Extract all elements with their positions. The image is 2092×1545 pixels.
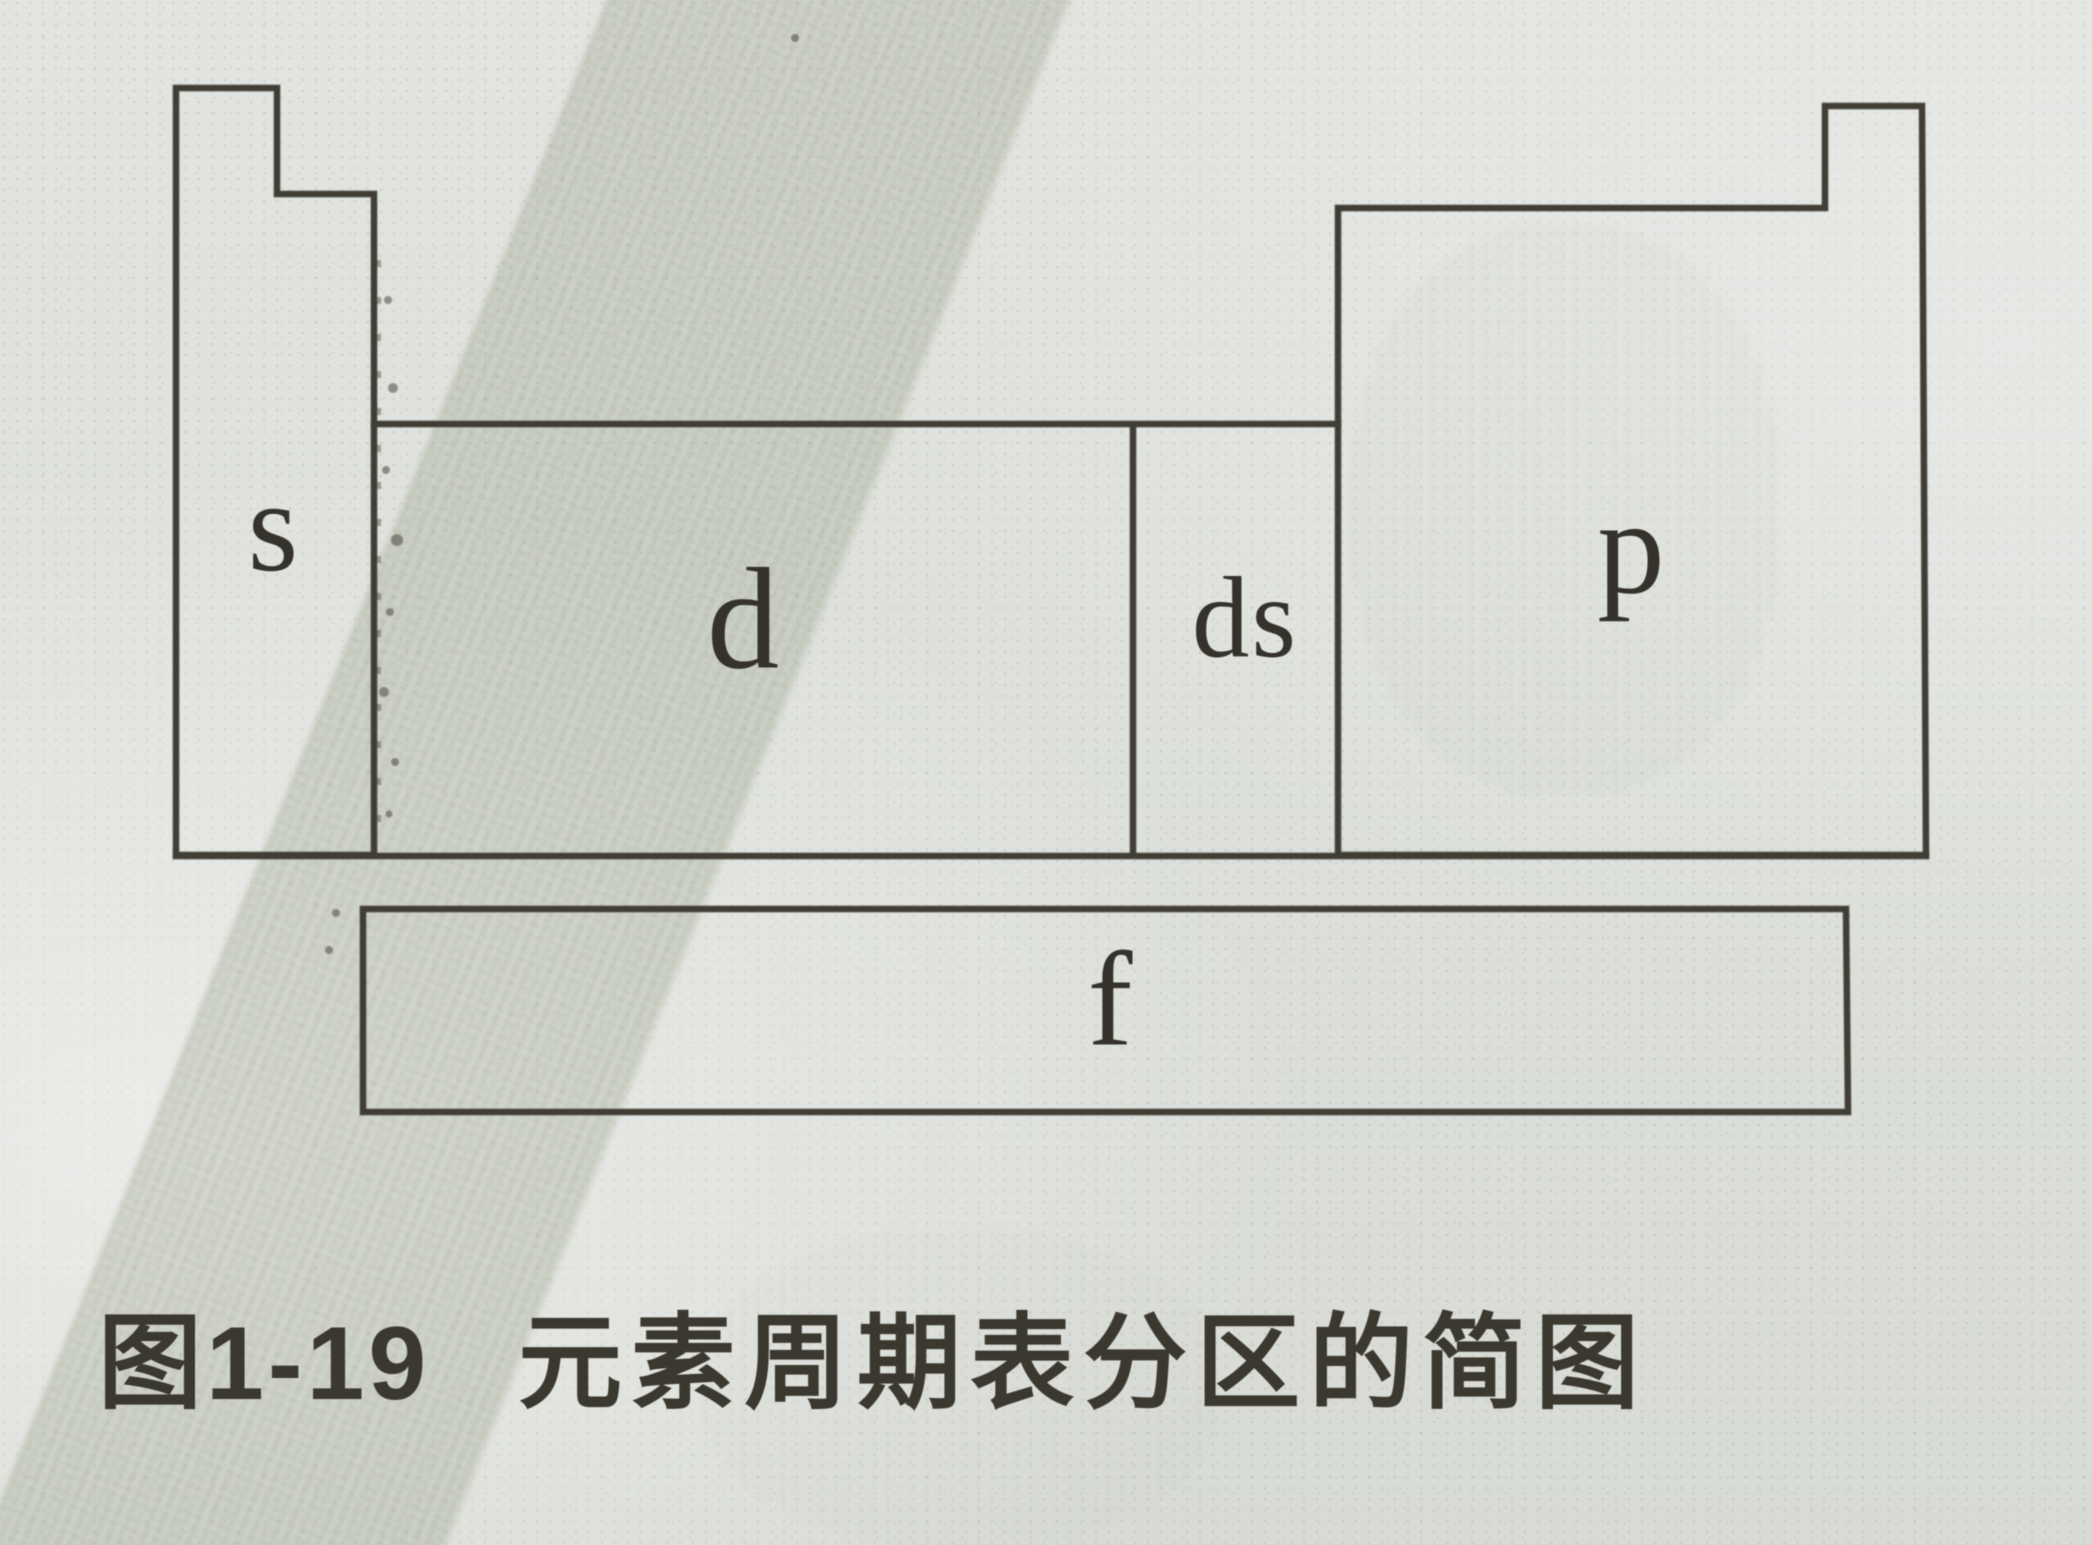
ds-block-label: ds xyxy=(1192,561,1298,676)
figure-title: 元素周期表分区的简图 xyxy=(518,1306,1648,1422)
d-block-label: d xyxy=(707,548,780,693)
figure-number: 图1-19 xyxy=(98,1306,430,1422)
s-block-label: s xyxy=(248,462,299,592)
figure-caption: 图1-19元素周期表分区的简图 xyxy=(98,1278,1648,1429)
f-block-label: f xyxy=(1088,933,1133,1068)
scanned-textbook-page: s d ds p f 图1-19元素周期表分区的简图 xyxy=(0,0,2092,1545)
scan-artifact-dots xyxy=(325,34,799,954)
p-block-label: p xyxy=(1597,481,1665,616)
